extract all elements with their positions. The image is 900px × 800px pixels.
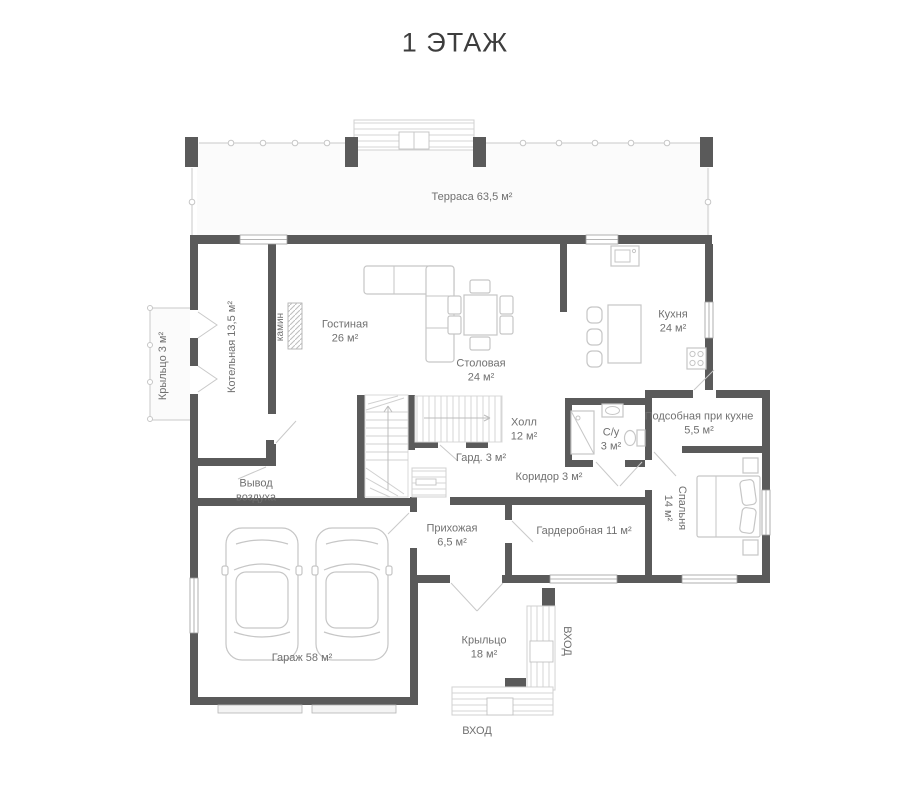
- entry-steps: [412, 468, 446, 497]
- room-name: Спальня: [674, 486, 688, 530]
- kitchen-island-icon: [587, 305, 641, 367]
- porch-steps-south: [452, 687, 553, 715]
- room-area: 3 м²: [601, 440, 621, 454]
- room-label-corridor: Коридор 3 м²: [516, 471, 583, 485]
- stove-icon: [687, 348, 706, 369]
- terrace-area: [189, 120, 711, 237]
- staircase: [365, 395, 408, 497]
- air-outlet-line2: воздуха: [236, 491, 276, 505]
- kitchen-sink-icon: [611, 246, 639, 266]
- room-label-kitchen: Кухня 24 м²: [658, 308, 687, 336]
- floor-plan-drawing: [0, 0, 900, 800]
- room-area: 26 м²: [322, 332, 368, 346]
- label-entrance-south: ВХОД: [462, 725, 492, 739]
- room-area: 18 м²: [462, 648, 507, 662]
- room-name: Холл: [511, 416, 538, 430]
- dining-table-icon: [448, 280, 513, 350]
- room-name: С/у: [601, 426, 621, 440]
- sofa-icon: [364, 266, 454, 362]
- room-label-terrace: Терраса 63,5 м²: [432, 191, 513, 205]
- room-area: 24 м²: [658, 322, 687, 336]
- room-label-hall: Холл 12 м²: [511, 416, 538, 444]
- bed-icon: [697, 458, 760, 555]
- room-label-garage: Гараж 58 м²: [272, 652, 333, 666]
- room-label-pantry: Подсобная при кухне 5,5 м²: [645, 410, 754, 438]
- room-label-bathroom: С/у 3 м²: [601, 426, 621, 454]
- car-icon: [222, 528, 302, 660]
- room-area: 24 м²: [456, 371, 505, 385]
- room-label-closet: Гард. 3 м²: [456, 452, 506, 466]
- bathroom-sink-icon: [602, 404, 623, 417]
- room-label-dining: Столовая 24 м²: [456, 357, 505, 385]
- room-label-fireplace: камин: [275, 313, 288, 341]
- label-air-outlet: Вывод воздуха: [236, 477, 276, 505]
- fireplace-icon: [288, 303, 302, 349]
- room-label-porch-main: Крыльцо 18 м²: [462, 634, 507, 662]
- garage-doors: [218, 705, 396, 713]
- room-name: Столовая: [456, 357, 505, 371]
- room-name: Подсобная при кухне: [645, 410, 754, 424]
- room-area: 14 м²: [660, 486, 674, 530]
- room-label-bedroom: Спальня 14 м²: [660, 486, 688, 530]
- room-label-wardrobe: Гардеробная 11 м²: [536, 525, 631, 539]
- room-label-living: Гостиная 26 м²: [322, 318, 368, 346]
- room-label-boiler: Котельная 13,5 м²: [226, 301, 240, 393]
- room-label-entry: Прихожая 6,5 м²: [427, 522, 478, 550]
- toilet-icon: [625, 430, 646, 446]
- shower-icon: [571, 411, 594, 454]
- room-name: Прихожая: [427, 522, 478, 536]
- terrace-steps: [354, 120, 474, 150]
- label-entrance-east: ВХОД: [559, 626, 573, 656]
- room-label-porch-left: Крыльцо 3 м²: [157, 332, 171, 400]
- room-name: Кухня: [658, 308, 687, 322]
- room-area: 5,5 м²: [645, 424, 754, 438]
- floor-plan-page: 1 ЭТАЖ: [0, 0, 900, 800]
- car-icon: [312, 528, 392, 660]
- room-name: Гостиная: [322, 318, 368, 332]
- porch-steps-east: [527, 606, 555, 690]
- air-outlet-line1: Вывод: [236, 477, 276, 491]
- room-area: 12 м²: [511, 430, 538, 444]
- room-area: 6,5 м²: [427, 536, 478, 550]
- closet-hatch: [415, 396, 502, 442]
- room-name: Крыльцо: [462, 634, 507, 648]
